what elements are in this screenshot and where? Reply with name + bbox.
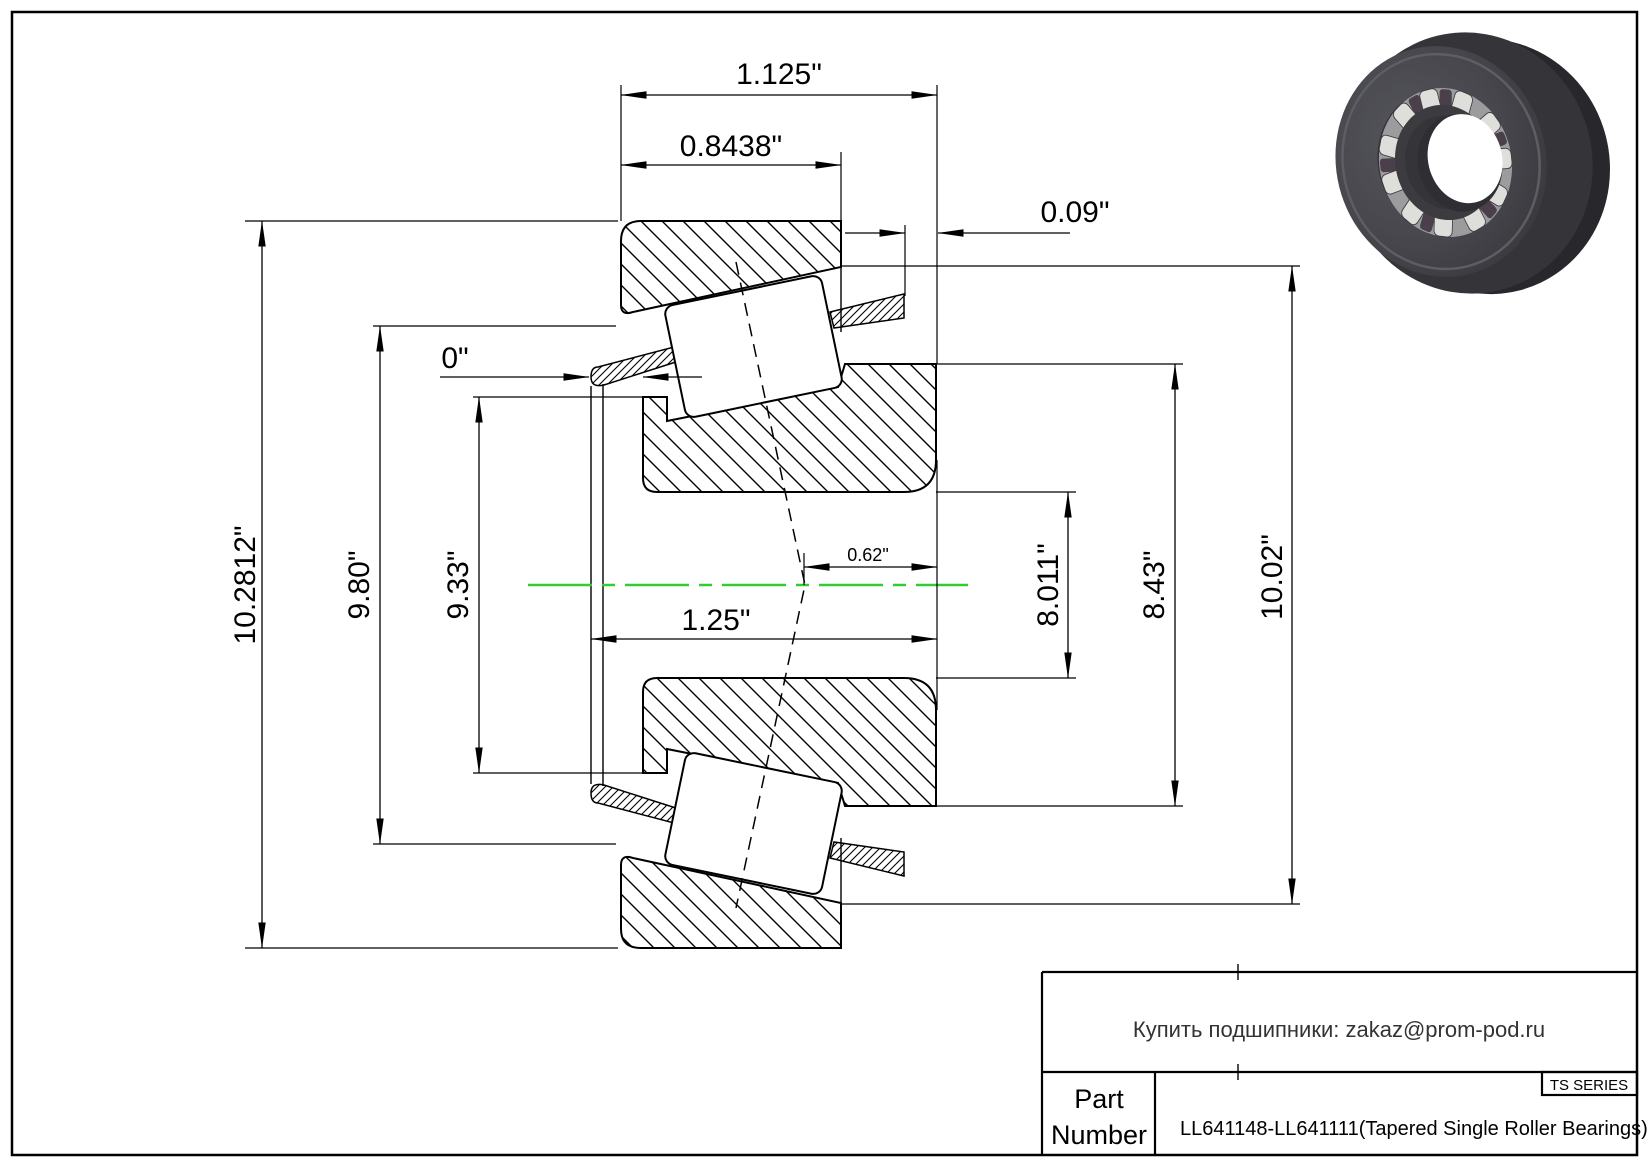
dim-length-125: 1.25" [591,604,937,639]
contact-text: Купить подшипники: zakaz@prom-pod.ru [1133,1017,1545,1042]
engineering-drawing: 1.125" 0.8438" 0.09" 0" 10.2812" 9.80" 9… [0,0,1649,1167]
dim-cup-width: 0.8438" [621,130,841,165]
dim-total-width-label: 1.125" [736,58,822,91]
dim-total-width: 1.125" [621,58,937,95]
title-block: Купить подшипники: zakaz@prom-pod.ru TS … [1042,964,1648,1155]
dim-diameter-1002-label: 10.02" [1256,534,1289,620]
dim-diameter-843-label: 8.43" [1138,550,1171,619]
dim-outside-diameter-label: 10.2812" [229,525,262,644]
dim-offset-062-label: 0.62" [847,545,888,565]
dim-cup-width-label: 0.8438" [680,130,782,163]
cage-front-strip-bottom [591,784,679,823]
ts-series-label: TS SERIES [1550,1077,1628,1094]
dim-offset-062: 0.62" [804,545,937,567]
dim-diameter-843: 8.43" [1138,364,1175,806]
dim-diameter-980: 9.80" [343,326,380,844]
dim-diameter-8011: 8.011" [1032,492,1068,678]
dim-front-face-gap-label: 0" [441,342,468,375]
part-label-line1: Part [1074,1084,1124,1114]
part-number-value: LL641148-LL641111(Tapered Single Roller … [1180,1118,1648,1140]
dim-diameter-933: 9.33" [442,397,479,773]
part-label-line2: Number [1051,1120,1147,1150]
dim-outside-diameter: 10.2812" [229,221,262,948]
dim-diameter-8011-label: 8.011" [1032,543,1065,627]
bearing-3d-render [1309,2,1636,327]
dim-length-125-label: 1.25" [681,604,750,637]
dim-diameter-933-label: 9.33" [442,550,475,619]
cage-front-strip-top [591,347,679,386]
dim-diameter-980-label: 9.80" [343,550,376,619]
dim-cage-protrusion: 0.09" [845,196,1110,233]
dim-cage-protrusion-label: 0.09" [1040,196,1109,229]
bearing-cross-section [528,221,968,948]
dim-diameter-1002: 10.02" [1256,266,1292,904]
drawing-page: 1.125" 0.8438" 0.09" 0" 10.2812" 9.80" 9… [0,0,1649,1167]
